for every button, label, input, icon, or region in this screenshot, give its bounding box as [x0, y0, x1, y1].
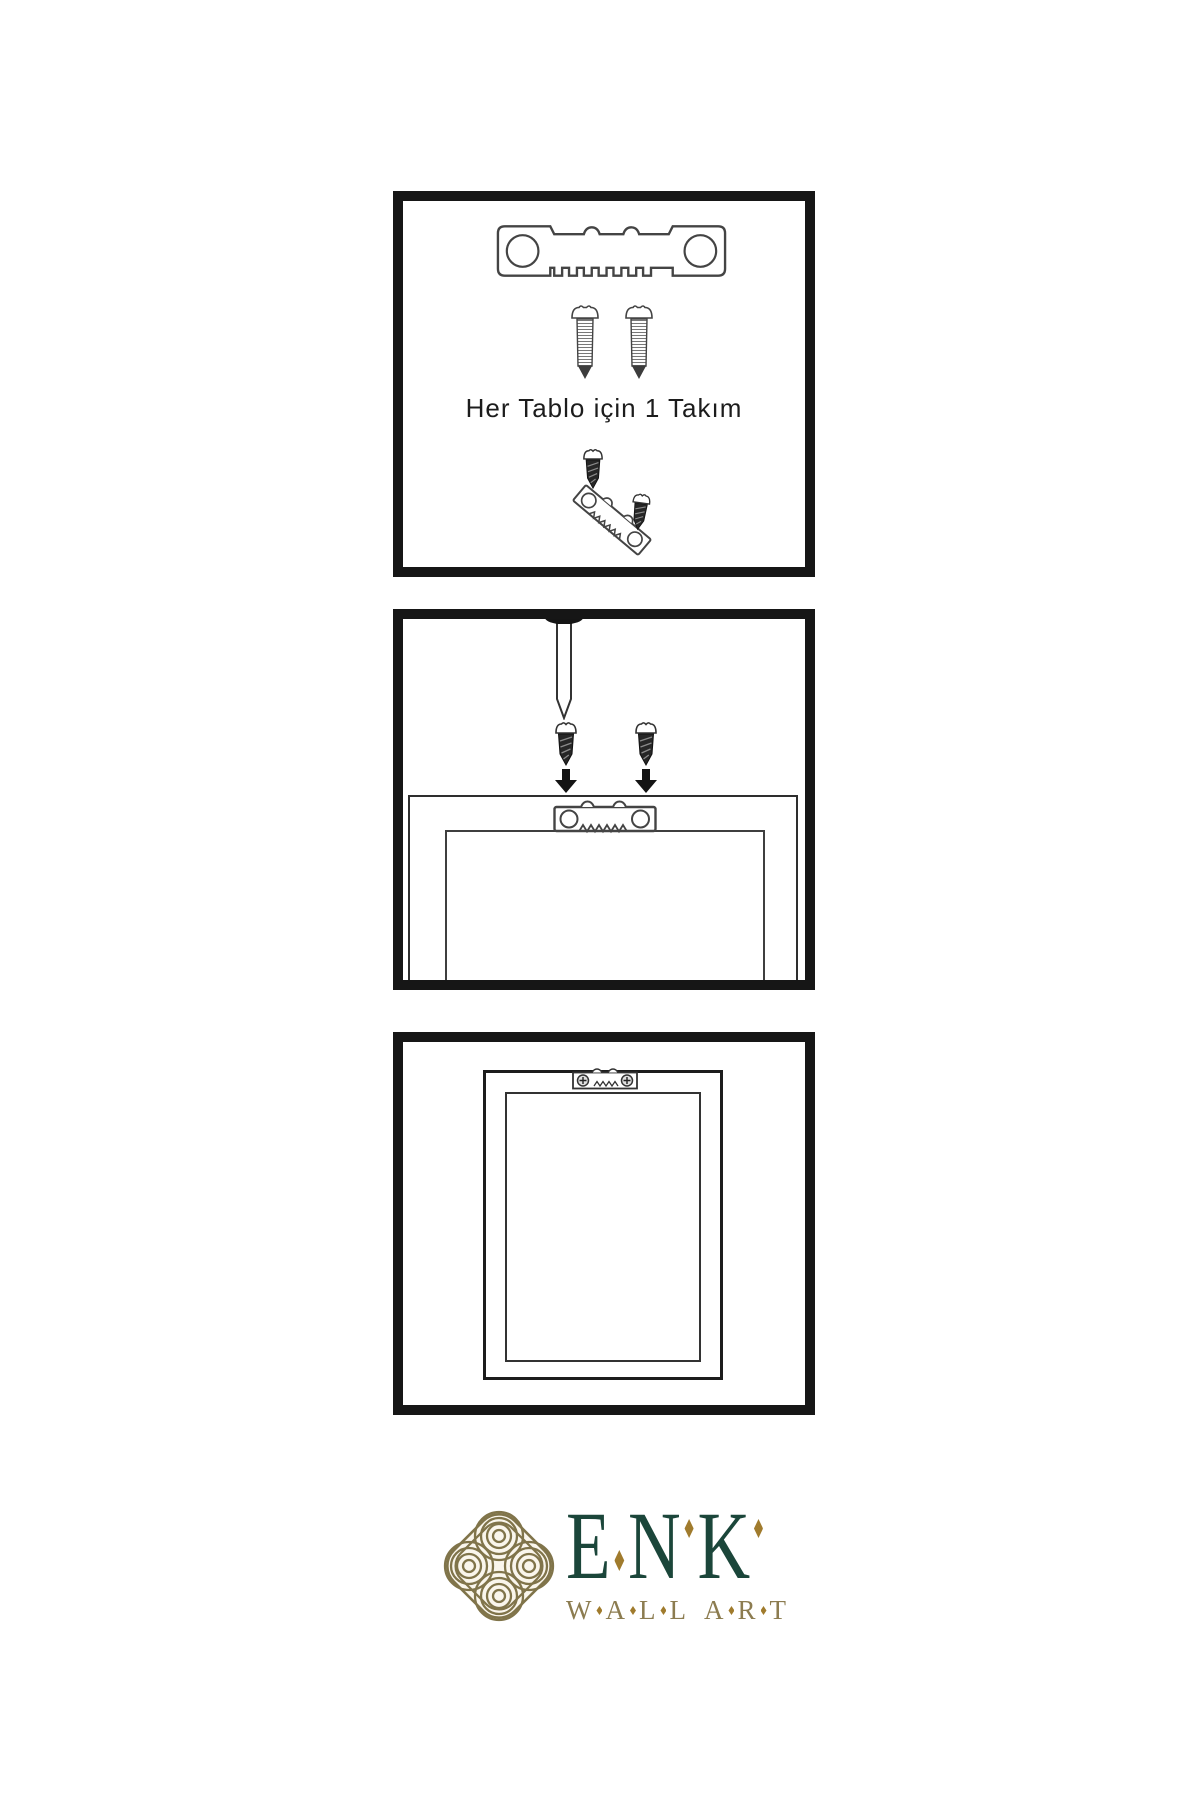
- brand-subtitle: WALL ART: [566, 1595, 830, 1626]
- brand-letter: K: [697, 1498, 750, 1594]
- screw-into-hanger-diagram: [560, 430, 680, 555]
- sawtooth-hanger-icon: [553, 800, 657, 838]
- screw-icon: [554, 721, 578, 767]
- screw-icon: [569, 304, 601, 380]
- subtitle-letter: L: [639, 1595, 658, 1626]
- diamond-icon: [754, 1519, 763, 1538]
- canvas-outline: [505, 1092, 701, 1362]
- step-panel-mounting: [393, 609, 815, 990]
- subtitle-letter: L: [669, 1595, 688, 1626]
- subtitle-letter: T: [770, 1595, 789, 1626]
- small-diamond-icon: [761, 1606, 767, 1615]
- instruction-sheet: Her Tablo için 1 Takım: [0, 0, 1200, 1800]
- small-diamond-icon: [596, 1606, 602, 1615]
- down-arrow-icon: [555, 769, 577, 793]
- wall-nail-icon: [542, 610, 586, 720]
- knot-emblem-icon: [440, 1502, 558, 1630]
- sawtooth-hanger-icon: [493, 222, 730, 280]
- frame-back-inner-outline: [445, 830, 765, 990]
- down-arrow-icon: [635, 769, 657, 793]
- small-diamond-icon: [660, 1606, 666, 1615]
- diamond-icon: [614, 1550, 624, 1571]
- step-panel-hanging: [393, 1032, 815, 1415]
- brand-name: E N K: [566, 1505, 767, 1589]
- diamond-icon: [685, 1519, 694, 1538]
- kit-caption: Her Tablo için 1 Takım: [403, 393, 805, 424]
- subtitle-letter: R: [737, 1595, 757, 1626]
- step-panel-hardware-kit: Her Tablo için 1 Takım: [393, 191, 815, 577]
- logo-text: E N K WALL ART: [566, 1498, 830, 1626]
- small-diamond-icon: [728, 1606, 734, 1615]
- mounted-hanger-icon: [572, 1068, 638, 1090]
- subtitle-letter: A: [605, 1595, 627, 1626]
- brand-letter: N: [628, 1498, 681, 1594]
- screw-icon: [627, 491, 652, 533]
- subtitle-word: ART: [704, 1595, 788, 1626]
- brand-logo: E N K WALL ART: [440, 1498, 830, 1630]
- screw-icon: [623, 304, 655, 380]
- subtitle-letter: A: [704, 1595, 726, 1626]
- subtitle-word: WALL: [566, 1595, 688, 1626]
- subtitle-letter: W: [566, 1595, 593, 1626]
- brand-letter: E: [566, 1498, 611, 1594]
- small-diamond-icon: [630, 1606, 636, 1615]
- screw-icon: [634, 721, 658, 767]
